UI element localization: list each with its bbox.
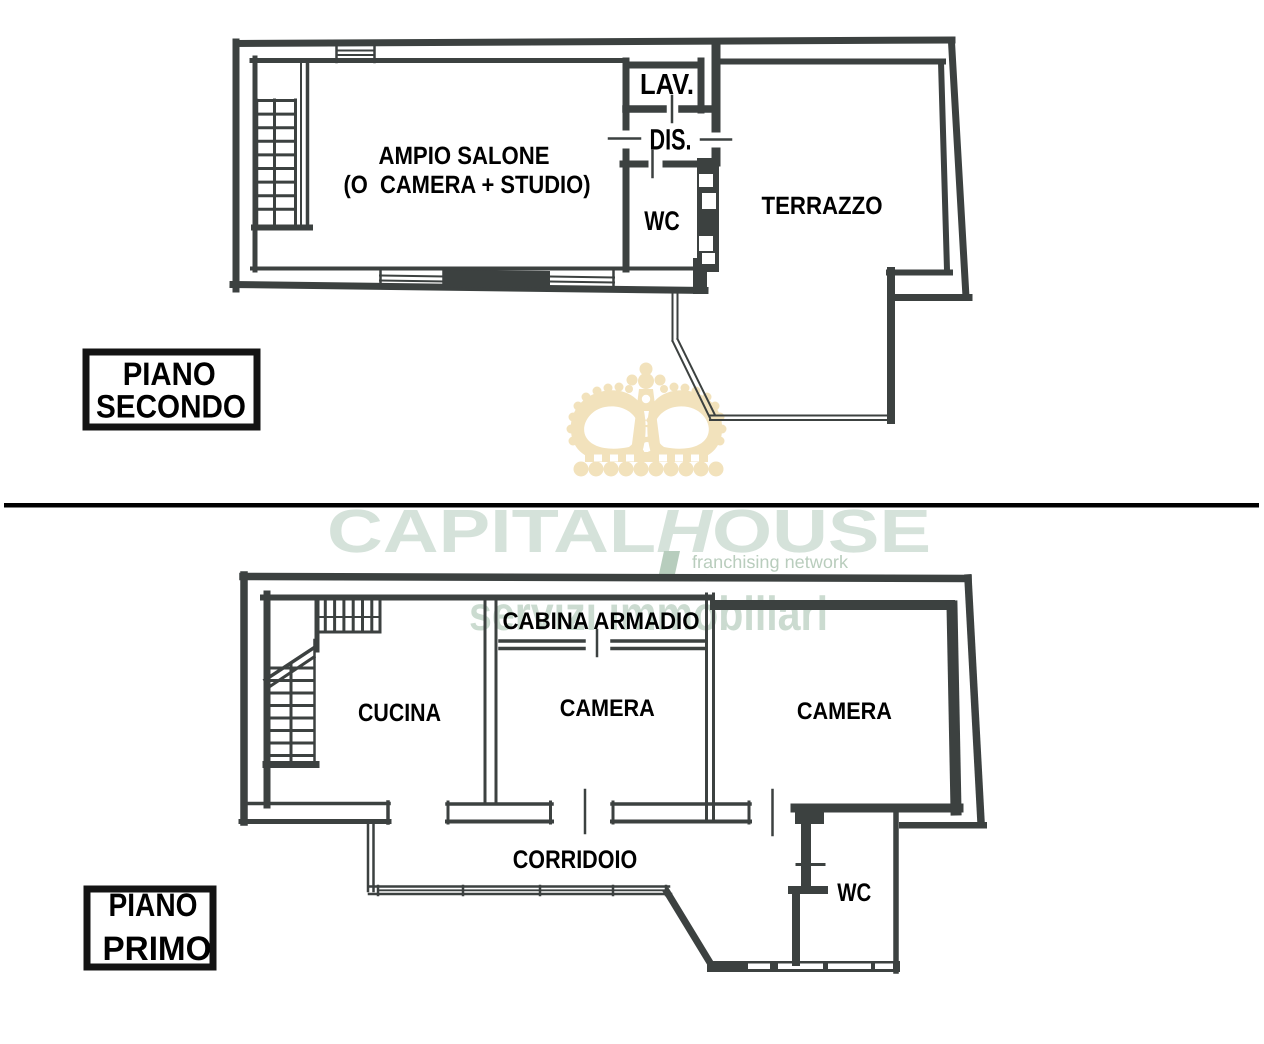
- svg-text:SECONDO: SECONDO: [96, 389, 246, 425]
- svg-text:AMPIO SALONE: AMPIO SALONE: [379, 142, 550, 170]
- svg-text:CAMERA: CAMERA: [560, 695, 655, 722]
- svg-text:franchising network: franchising network: [692, 552, 849, 572]
- svg-text:CABINA ARMADIO: CABINA ARMADIO: [503, 608, 700, 635]
- svg-text:PIANO: PIANO: [123, 356, 216, 392]
- svg-text:CUCINA: CUCINA: [358, 699, 441, 727]
- svg-text:CAMERA: CAMERA: [797, 698, 892, 725]
- svg-text:(O CAMERA + STUDIO): (O CAMERA + STUDIO): [344, 171, 591, 199]
- svg-text:CORRIDOIO: CORRIDOIO: [513, 846, 638, 874]
- svg-text:WC: WC: [644, 206, 680, 236]
- svg-text:TERRAZZO: TERRAZZO: [762, 192, 883, 220]
- svg-text:LAV.: LAV.: [640, 69, 694, 101]
- svg-text:PRIMO: PRIMO: [103, 930, 212, 968]
- svg-text:WC: WC: [837, 879, 871, 907]
- svg-text:DIS.: DIS.: [650, 124, 692, 157]
- svg-text:PIANO: PIANO: [109, 887, 198, 923]
